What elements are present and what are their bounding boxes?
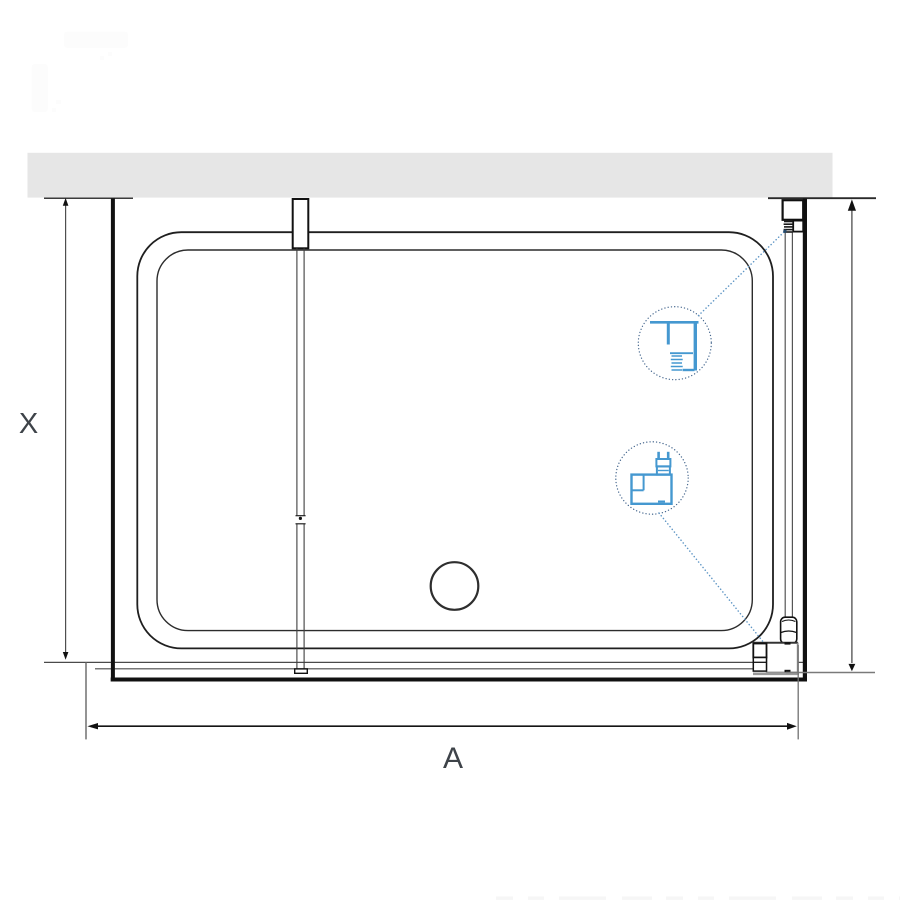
svg-text:X: X [19, 408, 38, 440]
svg-text:A: A [443, 742, 463, 775]
